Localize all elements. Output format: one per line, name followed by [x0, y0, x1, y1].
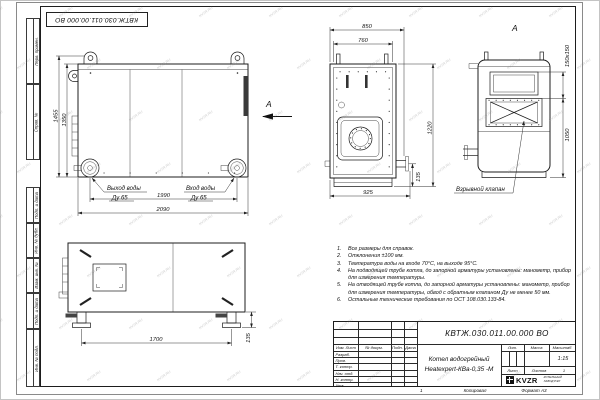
inlet-label: Вход воды: [186, 186, 216, 192]
view-side: 1455 1350 1990 2090 Выход воды Ду 65 Вхо…: [54, 52, 249, 216]
dim-valve-size: 150х150: [565, 44, 571, 67]
note-item: 5.На отводящей трубе котла, до запорной …: [337, 282, 575, 297]
arrow-icon: [262, 113, 273, 119]
dim-front-width-overall: 850: [362, 24, 372, 30]
note-text: Остальные технические требования по ОСТ …: [348, 297, 575, 304]
lit-header: Лит.: [508, 345, 517, 350]
row-prov: Пров.: [336, 358, 347, 363]
doc-number: КВТЖ.030.011.00.000 ВО: [417, 322, 577, 344]
logo-text: KVZR: [516, 376, 538, 385]
product-name-line2: Heatexpert-КВа-0,35 -М: [425, 365, 494, 375]
view-arrow-label: А: [265, 99, 272, 109]
note-number: 1.: [337, 246, 348, 253]
company-logo: KVZR КОТЕЛЬНЫЙ ЗАВОД РЭП: [501, 374, 577, 386]
support-leg: [77, 312, 86, 323]
scale-value: 1:15: [549, 351, 577, 366]
note-item: 6.Остальные технические требования по ОС…: [337, 297, 575, 304]
product-name: Котел водогрейный Heatexpert-КВа-0,35 -М: [417, 344, 501, 386]
view-rear-a: А 150х150: [454, 23, 571, 193]
dim-height-inner: 1350: [62, 113, 68, 127]
view-a-label: А: [511, 23, 518, 33]
dim-rear-height: 1050: [565, 128, 571, 142]
dim-foot-height: 135: [246, 332, 252, 342]
title-block: Изм. Лист № докум. Подп. Дата Разраб. Пр…: [333, 321, 576, 387]
outlet-dn-label: Ду 65: [111, 196, 128, 202]
note-item: 4.На подводящей трубе котла, до запорной…: [337, 268, 575, 283]
note-number: 5.: [337, 282, 348, 297]
note-text: На подводящей трубе котла, до запорной а…: [348, 268, 575, 283]
note-text: Отклонения ±100 мм.: [348, 253, 575, 260]
dim-span-ports: 1990: [157, 193, 171, 199]
drawing-sheet: Перв. примен. Справ. № Подп. и дата Инв.…: [0, 0, 600, 400]
note-number: 2.: [337, 253, 348, 260]
lifting-lug-icon: [235, 56, 240, 61]
dim-legs-span: 1700: [150, 337, 164, 343]
inlet-dn-label: Ду 65: [190, 196, 207, 202]
row-nkontr: Н. контр.: [336, 377, 354, 382]
note-text: На отводящей трубе котла, до запорной ар…: [348, 282, 575, 297]
dim-width-overall: 2090: [156, 207, 171, 213]
note-item: 2.Отклонения ±100 мм.: [337, 253, 575, 260]
footer-number: 1: [420, 388, 423, 393]
row-razrab: Разраб.: [336, 352, 350, 357]
row-nachotd: Нач. отд.: [336, 371, 354, 376]
col-izm-list: Изм. Лист: [336, 345, 356, 350]
note-item: 3.Температура воды на входе 70°С, на вых…: [337, 261, 575, 268]
lifting-lug-icon: [88, 56, 93, 61]
sheets-label: Листов: [532, 368, 547, 373]
view-direction-arrow: А: [262, 99, 292, 120]
logo-icon: [506, 376, 514, 384]
scale-header: Масштаб: [553, 345, 572, 350]
mass-header: Масса: [531, 345, 543, 350]
col-doc: № докум.: [365, 345, 383, 350]
dim-front-width-inner: 760: [358, 38, 368, 44]
dim-front-pipe-height: 135: [416, 171, 422, 181]
footer-copied-by: Копировал: [444, 388, 506, 393]
footer-format: Формат А3: [506, 388, 562, 393]
note-text: Все размеры для справок.: [348, 246, 575, 253]
hatch-opening: [93, 264, 126, 291]
outlet-label: Выход воды: [107, 186, 141, 192]
sheet-label: Лист: [507, 368, 517, 373]
note-number: 3.: [337, 261, 348, 268]
explosion-valve-label: Взрывной клапан: [456, 186, 505, 193]
note-item: 1.Все размеры для справок.: [337, 246, 575, 253]
product-name-line1: Котел водогрейный: [429, 355, 490, 365]
view-front: 850 760 1220 925 135: [325, 24, 436, 199]
company-name: КОТЕЛЬНЫЙ ЗАВОД РЭП: [544, 376, 562, 384]
company-name-line2: ЗАВОД РЭП: [544, 380, 562, 384]
note-number: 6.: [337, 297, 348, 304]
note-number: 4.: [337, 268, 348, 283]
support-leg: [227, 312, 236, 323]
dim-height-outer: 1455: [54, 109, 60, 123]
view-back: 1700 135: [59, 243, 256, 346]
technical-notes: 1.Все размеры для справок. 2.Отклонения …: [337, 246, 575, 304]
dim-front-base: 925: [363, 190, 373, 196]
note-text: Температура воды на входе 70°С, на выход…: [348, 261, 575, 268]
sheets-value: 1: [563, 368, 565, 373]
row-utv: Утв.: [336, 383, 345, 388]
dim-front-height: 1220: [428, 121, 434, 135]
col-sign: Подп.: [392, 345, 403, 350]
col-date: Дата: [405, 345, 416, 350]
boiler-door: [338, 117, 383, 160]
row-tkontr: Т. контр.: [336, 364, 353, 369]
